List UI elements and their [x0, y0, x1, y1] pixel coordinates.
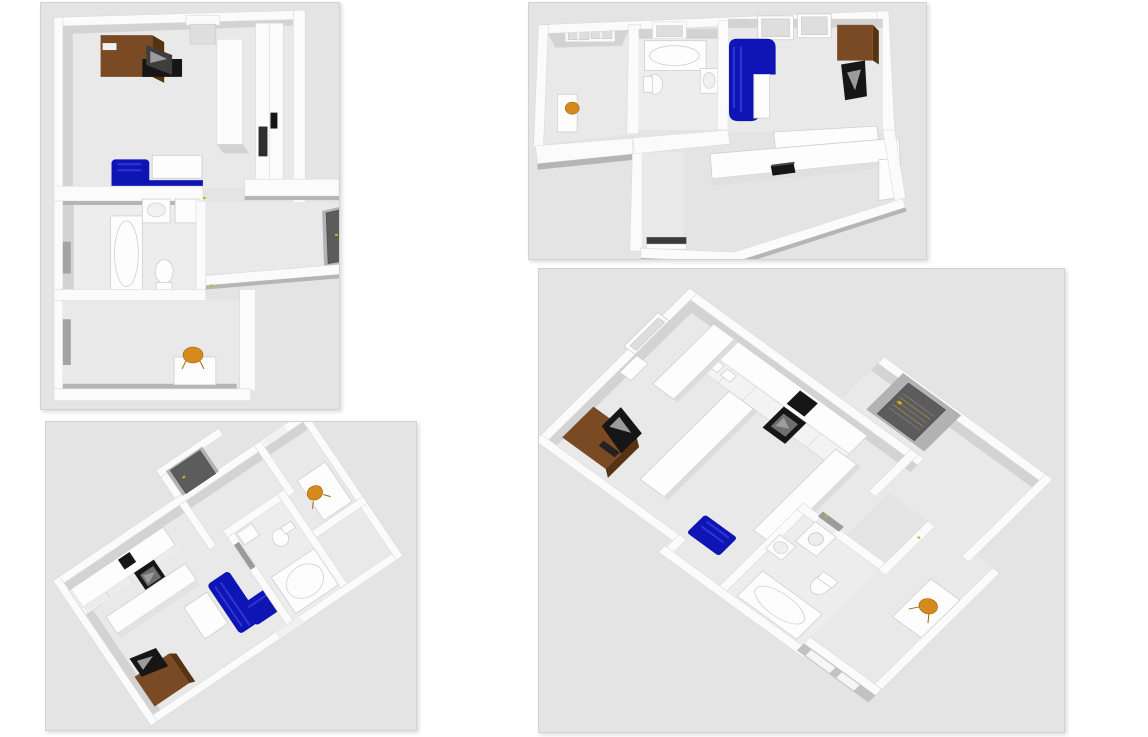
bathroom [54, 199, 206, 300]
sink [142, 199, 170, 223]
dark-panel-door [322, 204, 339, 268]
room-bedroom-left [543, 25, 630, 144]
door-handle-dot [210, 284, 213, 286]
desk-with-orange-chair [557, 94, 579, 132]
toilet [644, 74, 663, 94]
floor-plan-bottom-right[interactable] [538, 268, 1065, 733]
floor-plan-bottom-right-render [539, 269, 1064, 732]
white-table [754, 74, 770, 118]
floor-plan-top-right[interactable] [528, 2, 927, 260]
floor-plan-top-left[interactable] [40, 2, 340, 410]
floor-plan-top-left-render [41, 3, 339, 409]
wall-mid-right [245, 179, 339, 200]
bathroom [639, 21, 729, 130]
wall-bathroom-living [717, 21, 729, 130]
bathroom-bottom-wall [54, 289, 206, 300]
room-living [728, 14, 883, 132]
floor-plan-bottom-left[interactable] [45, 421, 417, 731]
wardrobe [256, 23, 284, 180]
window [758, 16, 794, 40]
floor-plan-board [0, 0, 1148, 737]
bathroom-right-wall [196, 201, 206, 292]
room-lower-right [206, 202, 339, 289]
room-bottom-wall [54, 389, 251, 401]
bathtub [645, 41, 707, 71]
door-handle-dot [203, 197, 206, 199]
floor-plan-bottom-left-render [46, 422, 416, 730]
wall-bedroom-bathroom [627, 25, 641, 134]
room-bottom-right-wall [240, 289, 256, 390]
hallway-door [647, 237, 687, 244]
sink [700, 68, 718, 93]
room-bottom [54, 289, 256, 400]
blue-corner-sofa [112, 155, 203, 191]
window [186, 15, 220, 44]
canvas: { "canvas": { "background": "#ffffff" },… [0, 0, 1148, 737]
bathtub [111, 216, 143, 291]
floor-plan-top-right-render [529, 3, 926, 259]
blue-corner-sofa [729, 39, 776, 121]
window [797, 14, 831, 38]
window [653, 22, 687, 39]
toilet [155, 260, 173, 292]
hallway [630, 139, 687, 251]
